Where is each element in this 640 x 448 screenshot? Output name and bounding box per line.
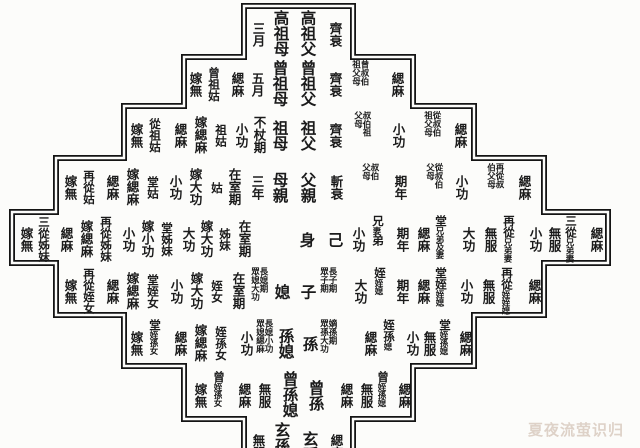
kinship-cell: 無服 xyxy=(358,371,372,433)
kinship-cell-part: 姪孫媳 xyxy=(439,331,449,355)
kinship-cell: 緦麻 xyxy=(172,319,186,381)
kinship-cell: 長子期眾子期 xyxy=(320,267,337,317)
kinship-cell-part: 姪孫媳 xyxy=(377,383,387,407)
kinship-cell: 曾孫媳 xyxy=(280,371,297,421)
kinship-cell-part: 姪媳 xyxy=(435,290,445,306)
kinship-cell: 無服 xyxy=(546,215,560,277)
kinship-cell-part: 祖父母 xyxy=(424,111,433,161)
kinship-cell-part: 姪孫女 xyxy=(149,331,159,355)
kinship-cell: 嫁緦麻 xyxy=(124,267,138,322)
kinship-cell: 孫媳 xyxy=(276,319,293,378)
kinship-cell-part: 姪孫 xyxy=(382,319,394,342)
kinship-cell: 緦麻 xyxy=(588,215,602,277)
kinship-cell: 長媳小功眾媳緦麻 xyxy=(256,319,273,369)
kinship-cell: 曾祖姑 xyxy=(207,60,219,117)
kinship-cell: 嫁緦麻 xyxy=(78,215,92,270)
kinship-cell-part: 眾孫大功 xyxy=(320,319,329,369)
kinship-cell: 嫁大功 xyxy=(198,215,212,270)
kinship-cell: 堂兄弟及妻 xyxy=(434,215,446,265)
kinship-cell: 堂姪孫媳 xyxy=(438,319,450,369)
kinship-cell: 父親 xyxy=(298,163,315,222)
kinship-cell: 無服 xyxy=(480,267,494,329)
kinship-cell: 緦麻 xyxy=(236,371,250,433)
kinship-cell: 玄孫媳 xyxy=(272,422,289,448)
kinship-cell: 三從兄弟妻 xyxy=(564,215,576,265)
kinship-cell-part: 妻 xyxy=(372,227,382,235)
kinship-cell-part: 堂 xyxy=(148,319,160,331)
kinship-cell-part: 兄弟及妻 xyxy=(435,227,445,259)
kinship-cell: 從叔伯祖父母 xyxy=(424,111,441,161)
kinship-cell: 叔伯祖父母 xyxy=(354,111,371,161)
kinship-cell: 緦麻 xyxy=(328,422,342,448)
kinship-cell: 嫁小功 xyxy=(139,215,153,270)
kinship-cell-part: 祖父母 xyxy=(352,60,361,110)
kinship-cell-part: 三從 xyxy=(564,215,576,238)
kinship-cell: 高祖母 xyxy=(271,10,288,60)
kinship-cell-part: 伯父母 xyxy=(487,163,496,213)
mourning-chart: 三月高祖母高祖父齊衰嫁無曾祖姑緦麻五月曾祖母曾祖父齊衰曾叔伯祖父母緦麻嫁無從祖姑… xyxy=(0,0,640,448)
kinship-cell-part: 堂姪 xyxy=(434,267,446,290)
kinship-cell-part: 再從 xyxy=(500,267,512,290)
kinship-cell-part: 眾媳緦麻 xyxy=(256,319,265,369)
kinship-cell-part: 姪孫女 xyxy=(213,383,223,407)
kinship-cell-part: 姪姪媳 xyxy=(501,290,511,314)
kinship-cell: 嫡孫期眾孫大功 xyxy=(320,319,337,369)
kinship-cell: 堂姪孫女 xyxy=(148,319,160,369)
kinship-cell: 嫁緦麻 xyxy=(192,319,206,374)
kinship-cell: 曾姪孫女 xyxy=(212,371,224,421)
kinship-cell: 姪孫媳 xyxy=(382,319,394,369)
kinship-cell: 曾叔伯祖父母 xyxy=(352,60,369,110)
kinship-cell: 嫁無 xyxy=(128,319,142,381)
kinship-cell: 嫁緦麻 xyxy=(124,163,138,218)
kinship-cell-part: 兄弟妻 xyxy=(565,238,575,262)
kinship-cell: 緦麻 xyxy=(396,371,410,433)
kinship-cell-part: 曾 xyxy=(376,371,388,383)
kinship-cell: 堂姊妹 xyxy=(160,215,172,272)
kinship-cell: 無服 xyxy=(250,422,264,448)
kinship-cell: 堂姪姪媳 xyxy=(434,267,446,317)
kinship-cell: 曾祖父 xyxy=(298,60,315,110)
kinship-cell: 嫁大功 xyxy=(188,267,202,322)
kinship-cell: 三年 xyxy=(249,163,263,225)
kinship-cell: 在室期 xyxy=(236,215,250,270)
kinship-cell-part: 父母 xyxy=(362,163,371,213)
kinship-cell-part: 兄弟妻 xyxy=(503,238,513,262)
kinship-cell: 堂姪女 xyxy=(146,267,158,324)
kinship-cell-part: 媳 xyxy=(383,342,393,350)
kinship-cell: 曾姪孫媳 xyxy=(376,371,388,421)
kinship-cell: 嫁無 xyxy=(192,371,206,433)
kinship-cell: 從祖姑 xyxy=(148,111,160,168)
kinship-cell-part: 姪媳 xyxy=(374,279,384,295)
kinship-cell: 嫁無 xyxy=(18,215,32,277)
kinship-cell: 嫁無 xyxy=(62,267,76,329)
kinship-cell-part: 曾 xyxy=(212,371,224,383)
kinship-cell: 嫁緦麻 xyxy=(192,111,206,166)
kinship-cell: 玄孫 xyxy=(300,422,317,448)
kinship-cell: 再從姪女 xyxy=(82,267,94,318)
kinship-cell: 再從姪姪媳 xyxy=(500,267,512,317)
kinship-cell-part: 弟 xyxy=(371,235,383,247)
kinship-cell: 曾孫 xyxy=(306,371,323,430)
kinship-cell: 祖父 xyxy=(298,111,315,170)
kinship-cell-part: 姪 xyxy=(373,267,385,279)
kinship-cell: 姪姪媳 xyxy=(373,267,385,317)
kinship-cell: 嫁大功 xyxy=(187,163,201,218)
kinship-cell: 再從姑 xyxy=(82,163,94,220)
kinship-cell: 再從兄弟妻 xyxy=(502,215,514,265)
kinship-cell: 緦麻 xyxy=(104,267,118,329)
kinship-cell-part: 堂 xyxy=(438,319,450,331)
kinship-cell-part: 眾子期 xyxy=(320,267,329,317)
kinship-cell: 不杖期 xyxy=(251,111,265,166)
kinship-cell: 曾祖母 xyxy=(270,60,287,110)
kinship-cell: 緦麻 xyxy=(457,319,471,381)
kinship-cell: 再從姊妹 xyxy=(99,215,111,266)
kinship-cell: 姪孫女 xyxy=(214,319,226,376)
kinship-cell-part: 堂 xyxy=(434,215,446,227)
kinship-cell: 兄妻弟 xyxy=(371,215,383,265)
kinship-cell-part: 眾媳大功 xyxy=(251,267,260,317)
kinship-cell: 祖母 xyxy=(270,111,287,170)
kinship-cell: 長媳期眾媳大功 xyxy=(251,267,268,317)
kinship-cell: 無服 xyxy=(421,319,435,381)
kinship-cell: 在室期 xyxy=(226,163,240,218)
kinship-cell: 高祖父 xyxy=(298,10,315,60)
kinship-cell-part: 再從 xyxy=(502,215,514,238)
kinship-cell: 從叔伯父母 xyxy=(426,163,443,213)
watermark: 夏夜流萤识归 xyxy=(528,419,624,440)
kinship-cell: 母親 xyxy=(270,163,287,222)
kinship-cell: 在室期 xyxy=(230,267,244,322)
kinship-cell: 再從叔伯父母 xyxy=(487,163,504,213)
kinship-cell: 叔伯父母 xyxy=(362,163,379,213)
kinship-cell: 緦麻 xyxy=(526,267,540,329)
kinship-cell-part: 兄 xyxy=(371,215,383,227)
kinship-cell: 三從姊妹 xyxy=(37,215,49,266)
